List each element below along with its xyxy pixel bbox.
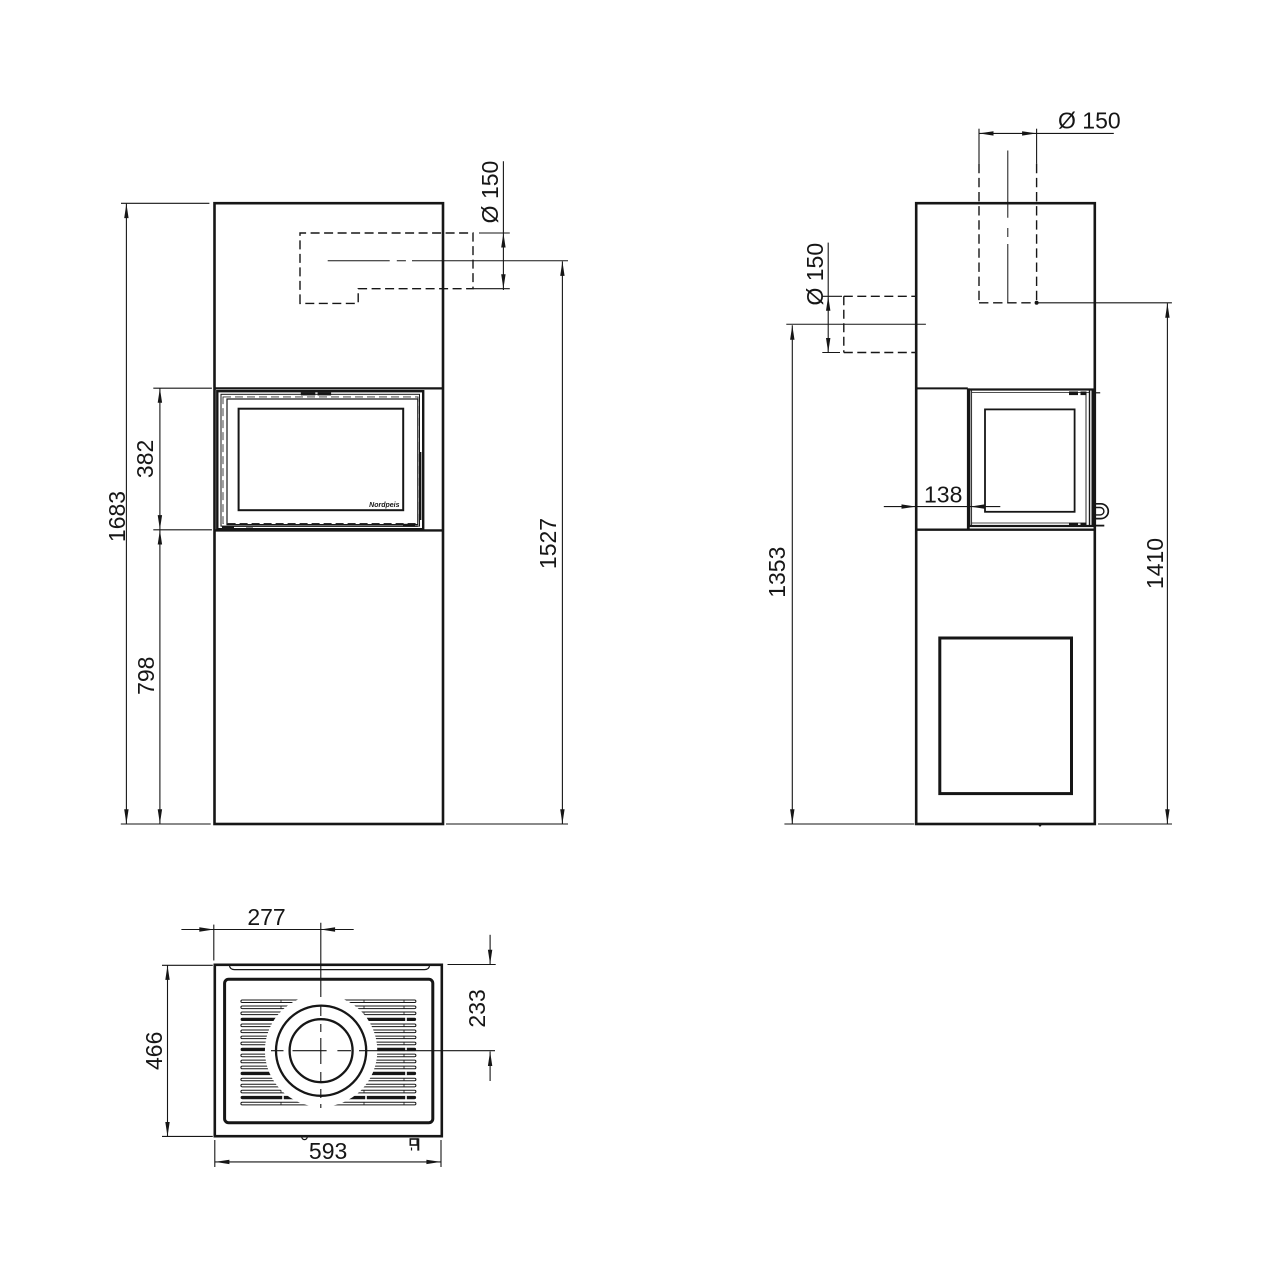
svg-text:233: 233 bbox=[464, 989, 490, 1027]
svg-text:Ø 150: Ø 150 bbox=[802, 243, 828, 306]
svg-text:798: 798 bbox=[133, 657, 159, 695]
svg-text:Ø 150: Ø 150 bbox=[477, 161, 503, 224]
svg-text:1683: 1683 bbox=[104, 491, 130, 542]
svg-text:1410: 1410 bbox=[1142, 538, 1168, 589]
svg-text:1353: 1353 bbox=[764, 547, 790, 598]
svg-text:1527: 1527 bbox=[535, 518, 561, 569]
svg-text:138: 138 bbox=[924, 482, 962, 508]
svg-text:593: 593 bbox=[309, 1138, 347, 1164]
svg-text:Nordpeis: Nordpeis bbox=[369, 502, 399, 509]
svg-text:466: 466 bbox=[141, 1032, 167, 1070]
svg-text:277: 277 bbox=[247, 904, 285, 930]
svg-text:382: 382 bbox=[132, 440, 158, 478]
svg-text:Ø 150: Ø 150 bbox=[1058, 107, 1121, 133]
